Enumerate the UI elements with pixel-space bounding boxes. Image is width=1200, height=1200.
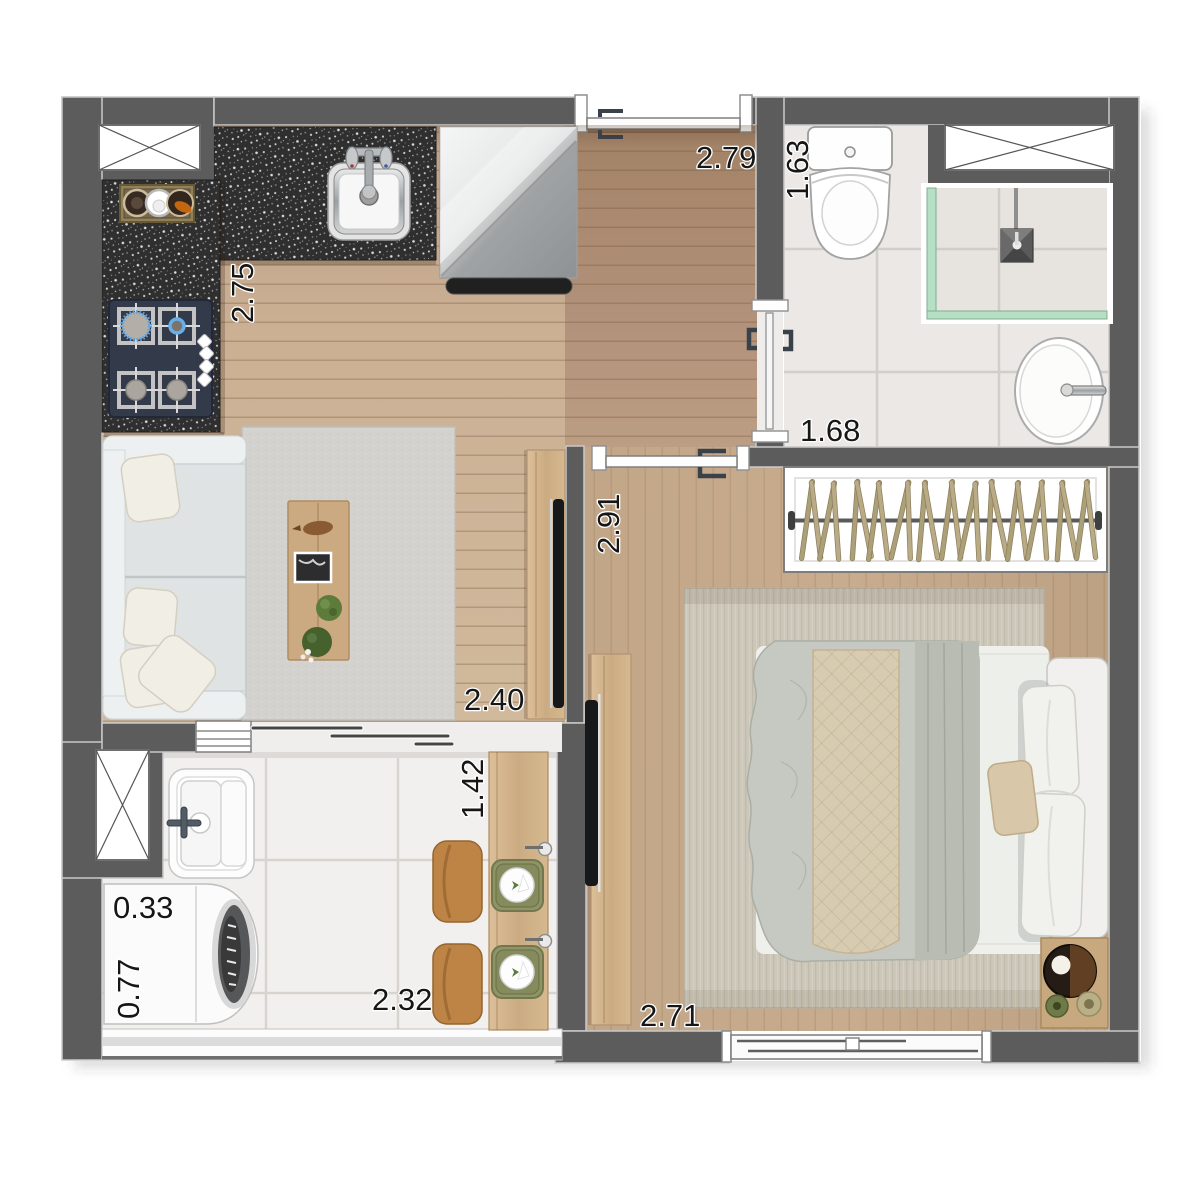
svg-text:2.79: 2.79 — [696, 140, 756, 175]
svg-text:2.71: 2.71 — [640, 998, 700, 1033]
svg-text:1.63: 1.63 — [780, 140, 815, 200]
svg-text:0.33: 0.33 — [113, 890, 173, 925]
svg-text:2.75: 2.75 — [225, 263, 260, 323]
svg-text:2.40: 2.40 — [464, 682, 524, 717]
svg-text:1.42: 1.42 — [455, 759, 490, 819]
svg-text:0.77: 0.77 — [111, 959, 146, 1019]
svg-text:2.91: 2.91 — [591, 494, 626, 554]
svg-text:2.32: 2.32 — [372, 982, 432, 1017]
svg-text:1.68: 1.68 — [800, 413, 860, 448]
